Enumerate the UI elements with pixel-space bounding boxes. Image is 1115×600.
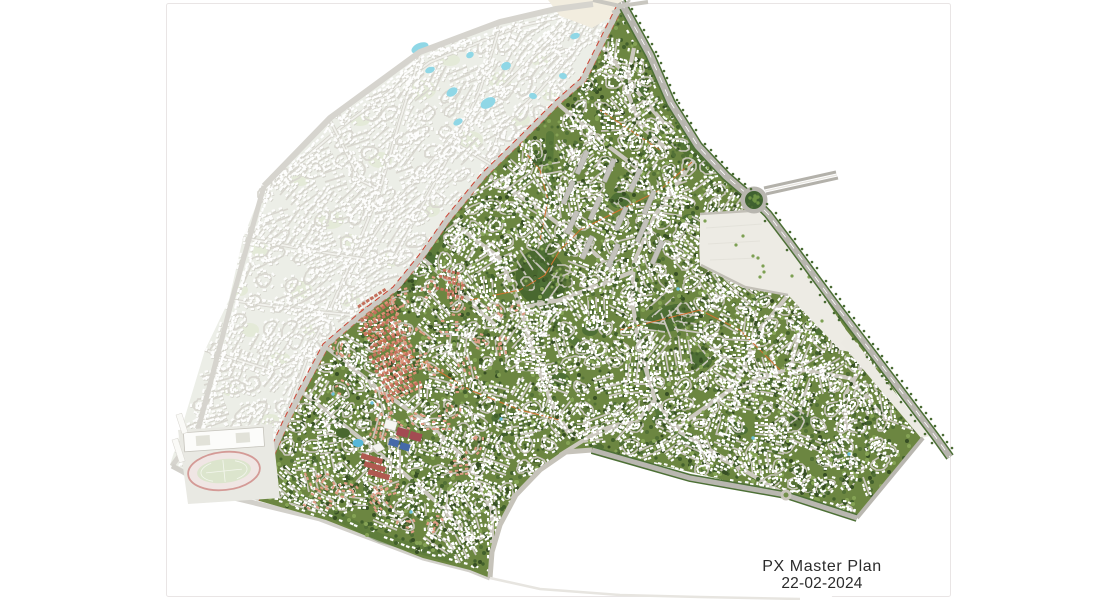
svg-text:PX Master Plan: PX Master Plan bbox=[762, 558, 882, 575]
svg-text:22-02-2024: 22-02-2024 bbox=[781, 575, 862, 592]
